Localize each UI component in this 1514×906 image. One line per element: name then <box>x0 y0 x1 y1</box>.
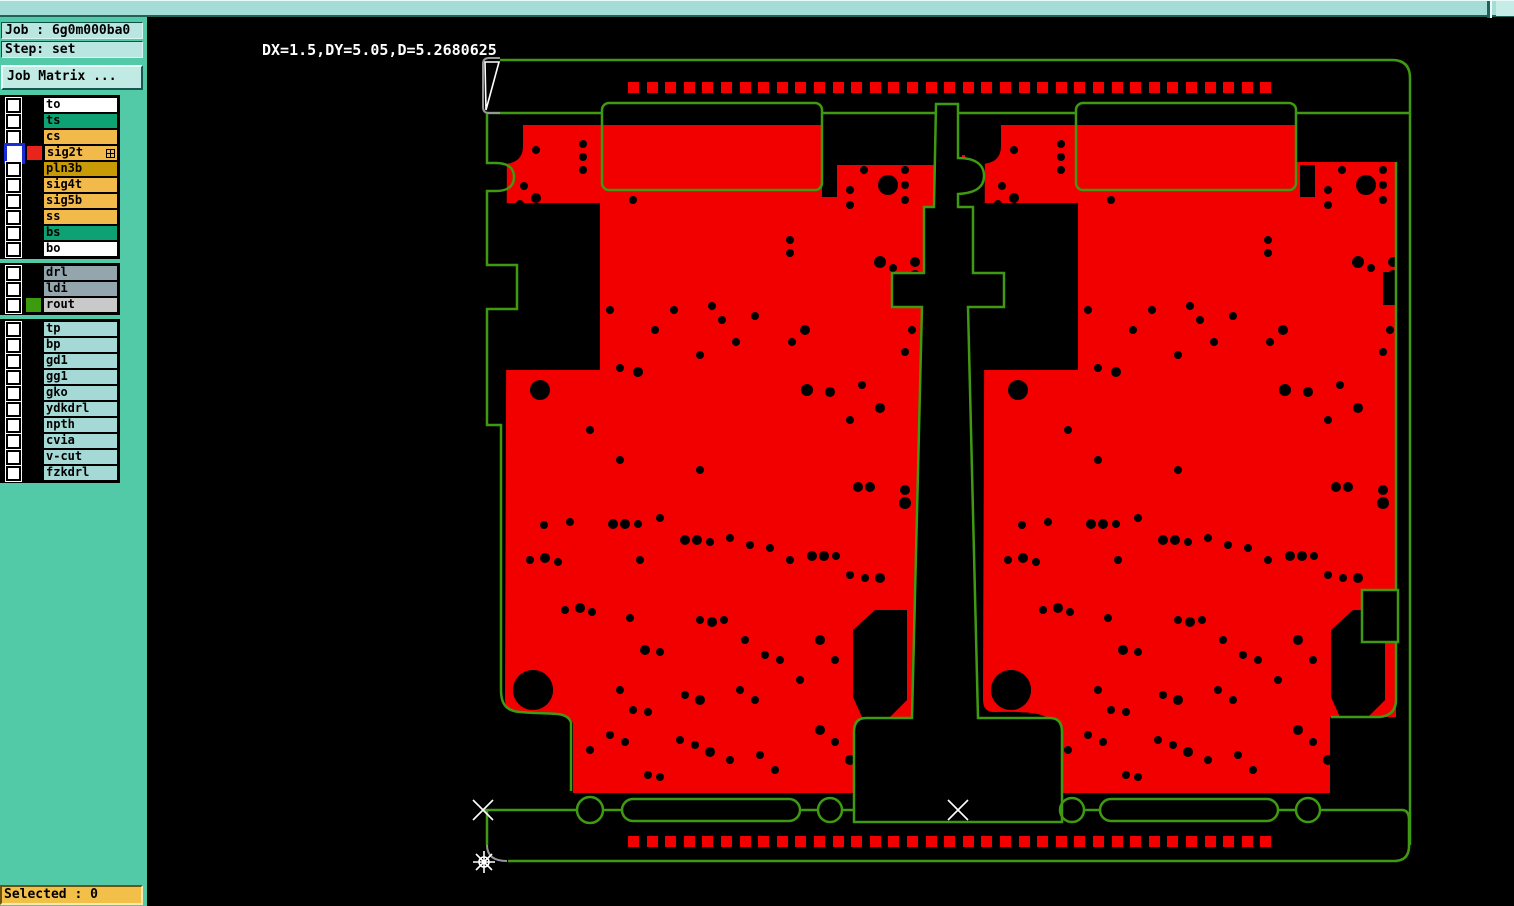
layer-label-bo[interactable]: bo <box>43 241 118 257</box>
layer-label-npth[interactable]: npth <box>43 417 118 433</box>
layer-label-to[interactable]: to <box>43 97 118 113</box>
layer-checkbox-ss[interactable] <box>6 210 21 225</box>
layer-checkbox-sig4t[interactable] <box>6 178 21 193</box>
pane-splitter[interactable] <box>1487 1 1492 18</box>
layer-color-chip-to[interactable] <box>26 98 41 112</box>
layer-checkbox-pln3b[interactable] <box>6 162 21 177</box>
layer-label-drl[interactable]: drl <box>43 265 118 281</box>
layer-color-chip-cvia[interactable] <box>26 434 41 448</box>
layer-checkbox-sig2t[interactable] <box>7 146 22 161</box>
selected-count-status: Selected : 0 <box>0 885 143 905</box>
layer-row-ldi[interactable]: ldi <box>2 281 118 297</box>
layer-color-chip-drl[interactable] <box>26 266 41 280</box>
layer-color-chip-sig4t[interactable] <box>26 178 41 192</box>
layer-checkbox-npth[interactable] <box>6 418 21 433</box>
layer-color-chip-gg1[interactable] <box>26 370 41 384</box>
layer-row-gko[interactable]: gko <box>2 385 118 401</box>
layer-label-v-cut[interactable]: v-cut <box>43 449 118 465</box>
layer-color-chip-pln3b[interactable] <box>26 162 41 176</box>
layer-color-chip-bp[interactable] <box>26 338 41 352</box>
layer-checkbox-gd1[interactable] <box>6 354 21 369</box>
layer-row-bo[interactable]: bo <box>2 241 118 257</box>
layer-color-chip-ts[interactable] <box>26 114 41 128</box>
layer-color-chip-v-cut[interactable] <box>26 450 41 464</box>
layer-color-chip-fzkdrl[interactable] <box>26 466 41 480</box>
layer-color-chip-gko[interactable] <box>26 386 41 400</box>
layer-label-cs[interactable]: cs <box>43 129 118 145</box>
layer-checkbox-bo[interactable] <box>6 242 21 257</box>
layer-row-ts[interactable]: ts <box>2 113 118 129</box>
layer-label-pln3b[interactable]: pln3b <box>43 161 118 177</box>
layer-color-chip-ss[interactable] <box>26 210 41 224</box>
layer-label-gd1[interactable]: gd1 <box>43 353 118 369</box>
layer-label-sig2t[interactable]: sig2t <box>44 145 118 161</box>
layer-row-drl[interactable]: drl <box>2 265 118 281</box>
layer-color-chip-bo[interactable] <box>26 242 41 256</box>
layer-row-ydkdrl[interactable]: ydkdrl <box>2 401 118 417</box>
layer-color-chip-ldi[interactable] <box>26 282 41 296</box>
title-bar-endcap <box>1496 1 1514 16</box>
layer-checkbox-ydkdrl[interactable] <box>6 402 21 417</box>
layer-checkbox-cvia[interactable] <box>6 434 21 449</box>
layer-label-bp[interactable]: bp <box>43 337 118 353</box>
sidebar-panel: Job : 6g0m000ba0 Step: set Job Matrix ..… <box>0 17 147 906</box>
job-field[interactable]: Job : 6g0m000ba0 <box>1 22 143 39</box>
layer-color-chip-npth[interactable] <box>26 418 41 432</box>
layer-row-gd1[interactable]: gd1 <box>2 353 118 369</box>
layer-color-chip-sig5b[interactable] <box>26 194 41 208</box>
layer-checkbox-drl[interactable] <box>6 266 21 281</box>
layer-color-chip-rout[interactable] <box>26 298 41 312</box>
layer-label-fzkdrl[interactable]: fzkdrl <box>43 465 118 481</box>
layer-checkbox-bs[interactable] <box>6 226 21 241</box>
layer-checkbox-fzkdrl[interactable] <box>6 466 21 481</box>
layer-label-sig5b[interactable]: sig5b <box>43 193 118 209</box>
app-window: { "titlebar": {"note": ""}, "sidebar": {… <box>0 0 1514 906</box>
layer-checkbox-bp[interactable] <box>6 338 21 353</box>
layer-row-cs[interactable]: cs <box>2 129 118 145</box>
layer-checkbox-gg1[interactable] <box>6 370 21 385</box>
layer-group-2: tpbpgd1gg1gkoydkdrlnpthcviav-cutfzkdrl <box>0 319 120 483</box>
layer-label-cvia[interactable]: cvia <box>43 433 118 449</box>
layer-label-ydkdrl[interactable]: ydkdrl <box>43 401 118 417</box>
layer-label-rout[interactable]: rout <box>43 297 118 313</box>
layer-row-tp[interactable]: tp <box>2 321 118 337</box>
layer-color-chip-gd1[interactable] <box>26 354 41 368</box>
layer-row-sig5b[interactable]: sig5b <box>2 193 118 209</box>
pcb-editor-canvas[interactable] <box>0 0 1514 906</box>
layer-checkbox-ldi[interactable] <box>6 282 21 297</box>
layer-color-chip-cs[interactable] <box>26 130 41 144</box>
layer-label-ts[interactable]: ts <box>43 113 118 129</box>
layer-row-npth[interactable]: npth <box>2 417 118 433</box>
layer-row-rout[interactable]: rout <box>2 297 118 313</box>
layer-checkbox-cs[interactable] <box>6 130 21 145</box>
layer-label-ss[interactable]: ss <box>43 209 118 225</box>
layer-expand-icon[interactable] <box>106 149 115 158</box>
layer-row-pln3b[interactable]: pln3b <box>2 161 118 177</box>
layer-label-gg1[interactable]: gg1 <box>43 369 118 385</box>
layer-checkbox-gko[interactable] <box>6 386 21 401</box>
layer-checkbox-tp[interactable] <box>6 322 21 337</box>
layer-row-gg1[interactable]: gg1 <box>2 369 118 385</box>
layer-row-ss[interactable]: ss <box>2 209 118 225</box>
layer-row-bp[interactable]: bp <box>2 337 118 353</box>
layer-checkbox-v-cut[interactable] <box>6 450 21 465</box>
layer-list: totscssig2tpln3bsig4tsig5bssbsbodrlldiro… <box>0 95 120 487</box>
layer-group-1: drlldirout <box>0 263 120 315</box>
layer-label-tp[interactable]: tp <box>43 321 118 337</box>
layer-color-chip-sig2t[interactable] <box>27 146 42 160</box>
layer-color-chip-bs[interactable] <box>26 226 41 240</box>
job-matrix-button[interactable]: Job Matrix ... <box>1 65 143 90</box>
layer-checkbox-sig5b[interactable] <box>6 194 21 209</box>
layer-row-sig2t[interactable]: sig2t <box>2 145 118 161</box>
layer-row-bs[interactable]: bs <box>2 225 118 241</box>
layer-label-ldi[interactable]: ldi <box>43 281 118 297</box>
origin-star-marker <box>473 851 495 873</box>
cursor-delta-readout: DX=1.5,DY=5.05,D=5.2680625 <box>262 41 497 59</box>
layer-row-sig4t[interactable]: sig4t <box>2 177 118 193</box>
layer-checkbox-rout[interactable] <box>6 298 21 313</box>
layer-label-bs[interactable]: bs <box>43 225 118 241</box>
layer-group-0: totscssig2tpln3bsig4tsig5bssbsbo <box>0 95 120 259</box>
layer-row-v-cut[interactable]: v-cut <box>2 449 118 465</box>
layer-label-sig4t[interactable]: sig4t <box>43 177 118 193</box>
layer-checkbox-ts[interactable] <box>6 114 21 129</box>
layer-row-fzkdrl[interactable]: fzkdrl <box>2 465 118 481</box>
layer-color-chip-ydkdrl[interactable] <box>26 402 41 416</box>
step-field[interactable]: Step: set <box>1 41 143 58</box>
layer-label-gko[interactable]: gko <box>43 385 118 401</box>
window-title-bar <box>0 0 1514 17</box>
layer-color-chip-tp[interactable] <box>26 322 41 336</box>
layer-checkbox-to[interactable] <box>6 98 21 113</box>
layer-row-cvia[interactable]: cvia <box>2 433 118 449</box>
layer-row-to[interactable]: to <box>2 97 118 113</box>
